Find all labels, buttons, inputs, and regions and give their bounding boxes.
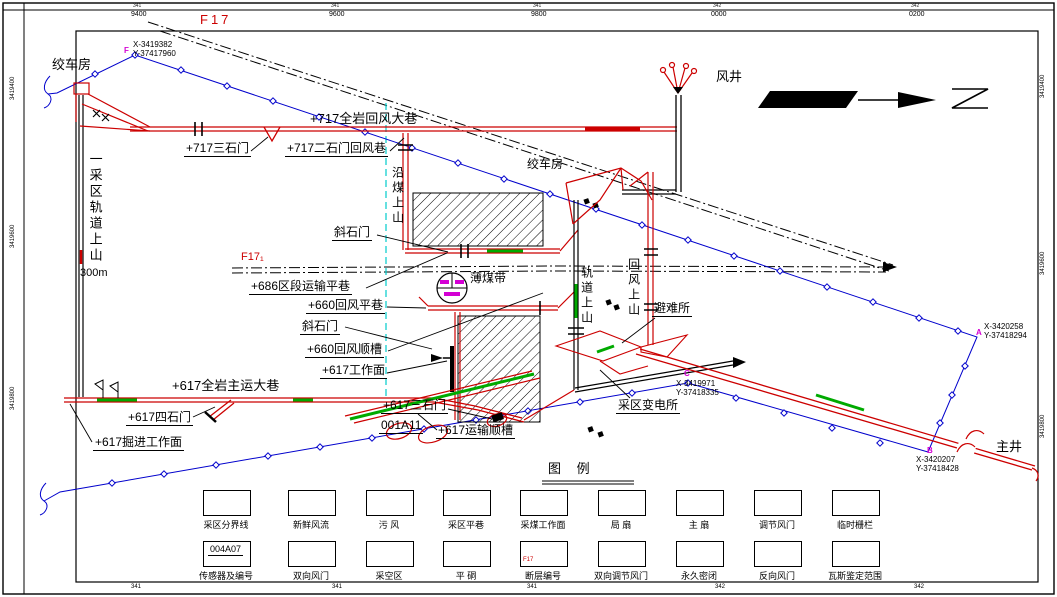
q686-gateway-label: +686区段运输平巷 [249,279,352,295]
left-track-incline-length: 300m [80,268,108,280]
legend-caption-two-way-door: 双向风门 [269,569,353,582]
slant-crosscut-upper-label: 斜石门 [332,225,372,241]
grid-coordinate-label: 9400 [131,11,147,18]
survey-point-c-id: C [684,370,690,378]
legend-fault-tag: F17 [523,557,533,563]
survey-point-f-y: Y-37417960 [133,50,176,58]
q617-s3-label: +617三石门 [381,398,448,414]
legend-caption-fresh-air: 新鲜风流 [269,518,353,531]
legend-caption-boundary: 采区分界线 [184,518,268,531]
mine-ventilation-drawing: 341 341 341 342 342 9400 9600 9800 0000 … [0,0,1057,597]
legend-caption-coal-face: 采煤工作面 [501,518,585,531]
q717-main-airway-label: +717全岩回风大巷 [310,112,417,126]
legend-box-regulator-door [754,490,802,516]
goaf-block-lower [458,316,540,422]
panel-id-label: 001A11 [379,418,423,434]
grid-coordinate-label: 3419600 [1040,252,1046,275]
legend-caption-regulator-door: 调节风门 [735,518,819,531]
legend-box-district-roadway [443,490,491,516]
q717-s2-label: +717二石门回风巷 [285,141,388,157]
goaf-block-upper [413,193,543,246]
legend-caption-two-way-regulator: 双向调节风门 [579,569,663,582]
grid-coordinate-label: 341 [527,584,537,590]
legend-box-permanent-seal [676,541,724,567]
q717-door-ticks [195,122,202,136]
fault-label-f17-1: F17₁ [241,252,264,264]
wind-shaft-lines [622,95,681,194]
legend-caption-district-roadway: 采区平巷 [424,518,508,531]
legend-box-goaf [366,541,414,567]
legend-caption-foul-air: 污 风 [347,518,431,531]
grid-coordinate-label: 0000 [711,11,727,18]
q617-dev-face-label: +617掘进工作面 [93,435,184,451]
winch-house-left-label: 绞车房 [52,58,91,72]
legend-caption-fault-number: 断层编号 [501,569,585,582]
survey-point-b-id: B [927,447,933,455]
survey-point-c-y: Y-37418335 [676,389,719,397]
legend-box-coal-face [520,490,568,516]
grid-coordinate-label: 3419400 [10,77,16,100]
legend-title-underline [542,481,634,484]
q660-level-label: +660回风平巷 [306,298,385,314]
grid-coordinate-label: 3419400 [1040,75,1046,98]
legend-box-foul-air [366,490,414,516]
legend-box-boundary [203,490,251,516]
refuge-chamber-label: 避难所 [652,301,692,317]
legend-caption-local-fan: 局 扇 [579,518,663,531]
legend-box-fresh-air [288,490,336,516]
left-track-incline-label: 一采区轨道上山 [88,152,102,264]
grid-tick-minor: 341 [331,3,339,9]
main-shaft-label: 主井 [996,440,1022,454]
legend-box-two-way-door [288,541,336,567]
survey-point-a-y: Y-37418294 [984,332,1027,340]
grid-coordinate-label: 3419600 [10,225,16,248]
legend-box-two-way-regulator [598,541,646,567]
legend-box-gas-zone [832,541,880,567]
winch-house-right-label: 绞车房 [527,158,563,171]
coal-incline-label: 沿煤上山 [391,166,404,226]
legend-box-local-fan [598,490,646,516]
legend-caption-permanent-seal: 永久密闭 [657,569,741,582]
legend-caption-reverse-door: 反向风门 [735,569,819,582]
grid-coordinate-label: 341 [131,584,141,590]
legend-caption-sensor: 传感器及编号 [184,569,268,582]
grid-coordinate-label: 9600 [329,11,345,18]
legend-caption-temp-fence: 临时栅栏 [813,518,897,531]
q617-s4-label: +617四石门 [126,410,193,426]
refuge-cluster-lines [556,331,687,374]
substation-label: 采区变电所 [616,398,680,414]
grid-tick-minor: 341 [533,3,541,9]
q660-gate-label: +660回风顺槽 [305,342,384,358]
north-arrow-icon [758,89,988,108]
survey-point-a-id: A [976,329,982,337]
grid-coordinate-label: 3419800 [10,387,16,410]
wind-shaft-label: 风井 [716,70,742,84]
q617-face-label: +617工作面 [320,363,387,379]
survey-point-b-y: Y-37418428 [916,465,959,473]
q617-gate-label: +617运输顺槽 [436,423,515,439]
q617-haulage-label: +617全岩主运大巷 [172,379,279,393]
legend-box-reverse-door [754,541,802,567]
legend-caption-main-fan: 主 扇 [657,518,741,531]
track-incline-label: 轨道上山 [580,266,593,326]
winch-house-left-structure [74,83,150,264]
legend-box-main-fan [676,490,724,516]
grid-coordinate-label: 341 [332,584,342,590]
legend-caption-adit: 平 硐 [424,569,508,582]
sensor-circle-symbol [437,273,467,303]
grid-tick-minor: 341 [133,3,141,9]
grid-tick-minor: 342 [713,3,721,9]
fault-label-f17: F17 [200,13,231,27]
legend-box-adit [443,541,491,567]
legend-title: 图 例 [548,462,596,476]
slant-crosscut-lower-label: 斜石门 [300,319,340,335]
fan-base-mark [673,87,683,94]
legend-box-temp-fence [832,490,880,516]
substation-arrowhead [733,357,746,368]
legend-caption-goaf: 采空区 [347,569,431,582]
left-track-incline-lines [79,95,83,397]
grid-coordinate-label: 9800 [531,11,547,18]
air-door-flags-617 [95,380,118,398]
grid-coordinate-label: 3419800 [1040,415,1046,438]
survey-point-f-id: F [124,47,129,55]
q717-s3-label: +717三石门 [184,141,251,157]
grid-coordinate-label: 342 [715,584,725,590]
return-incline-label: 回风上山 [627,258,640,318]
thin-coal-band-label: 薄煤带 [470,272,506,285]
grid-tick-minor: 342 [911,3,919,9]
legend-sensor-id: 004A07 [208,544,243,556]
grid-coordinate-label: 0200 [909,11,925,18]
legend-caption-gas-zone: 瓦斯鉴定范围 [813,569,897,582]
grid-coordinate-label: 342 [914,584,924,590]
fresh-air-refuge [597,346,614,352]
